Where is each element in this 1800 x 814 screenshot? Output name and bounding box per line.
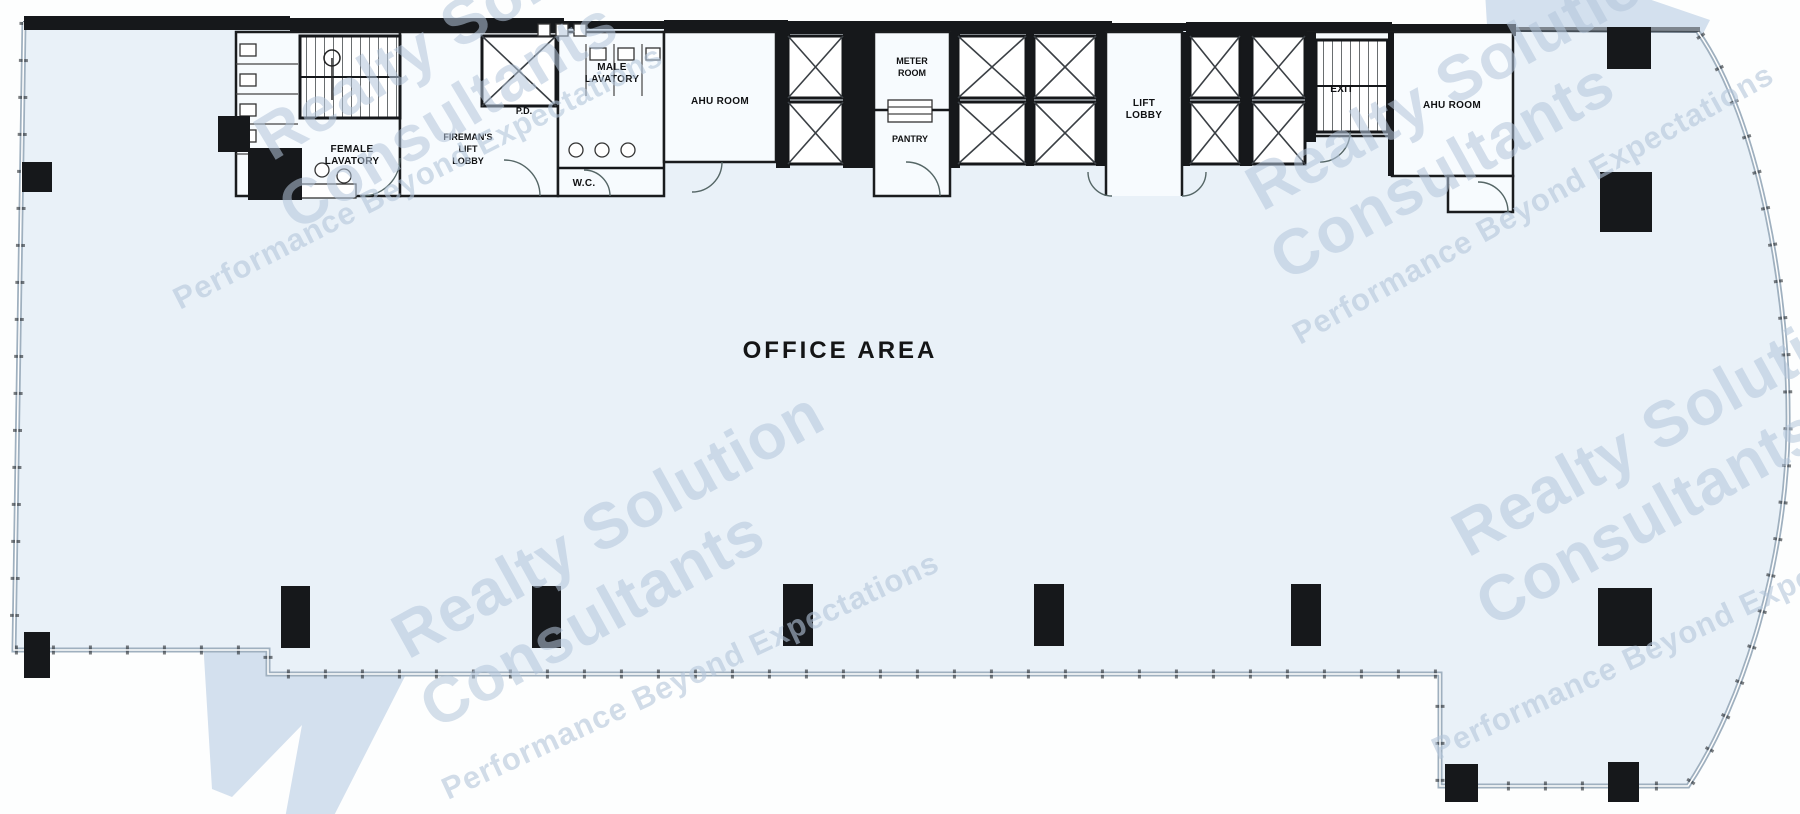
label-meter-2: ROOM — [898, 68, 926, 78]
floor-plan-page: FEMALE LAVATORY FIREMAN'S LIFT LOBBY P.D… — [0, 0, 1800, 814]
label-exit: EXIT — [1330, 84, 1353, 95]
label-office-area: OFFICE AREA — [743, 337, 938, 364]
label-pantry: PANTRY — [892, 134, 928, 144]
label-ahu-left: AHU ROOM — [691, 96, 749, 107]
label-meter-1: METER — [896, 56, 928, 66]
floor-plan-drawing: FEMALE LAVATORY FIREMAN'S LIFT LOBBY P.D… — [0, 0, 1800, 814]
label-wc: W.C. — [573, 178, 596, 189]
label-lift-lobby-2: LOBBY — [1126, 110, 1163, 121]
label-lift-lobby-1: LIFT — [1133, 98, 1155, 109]
